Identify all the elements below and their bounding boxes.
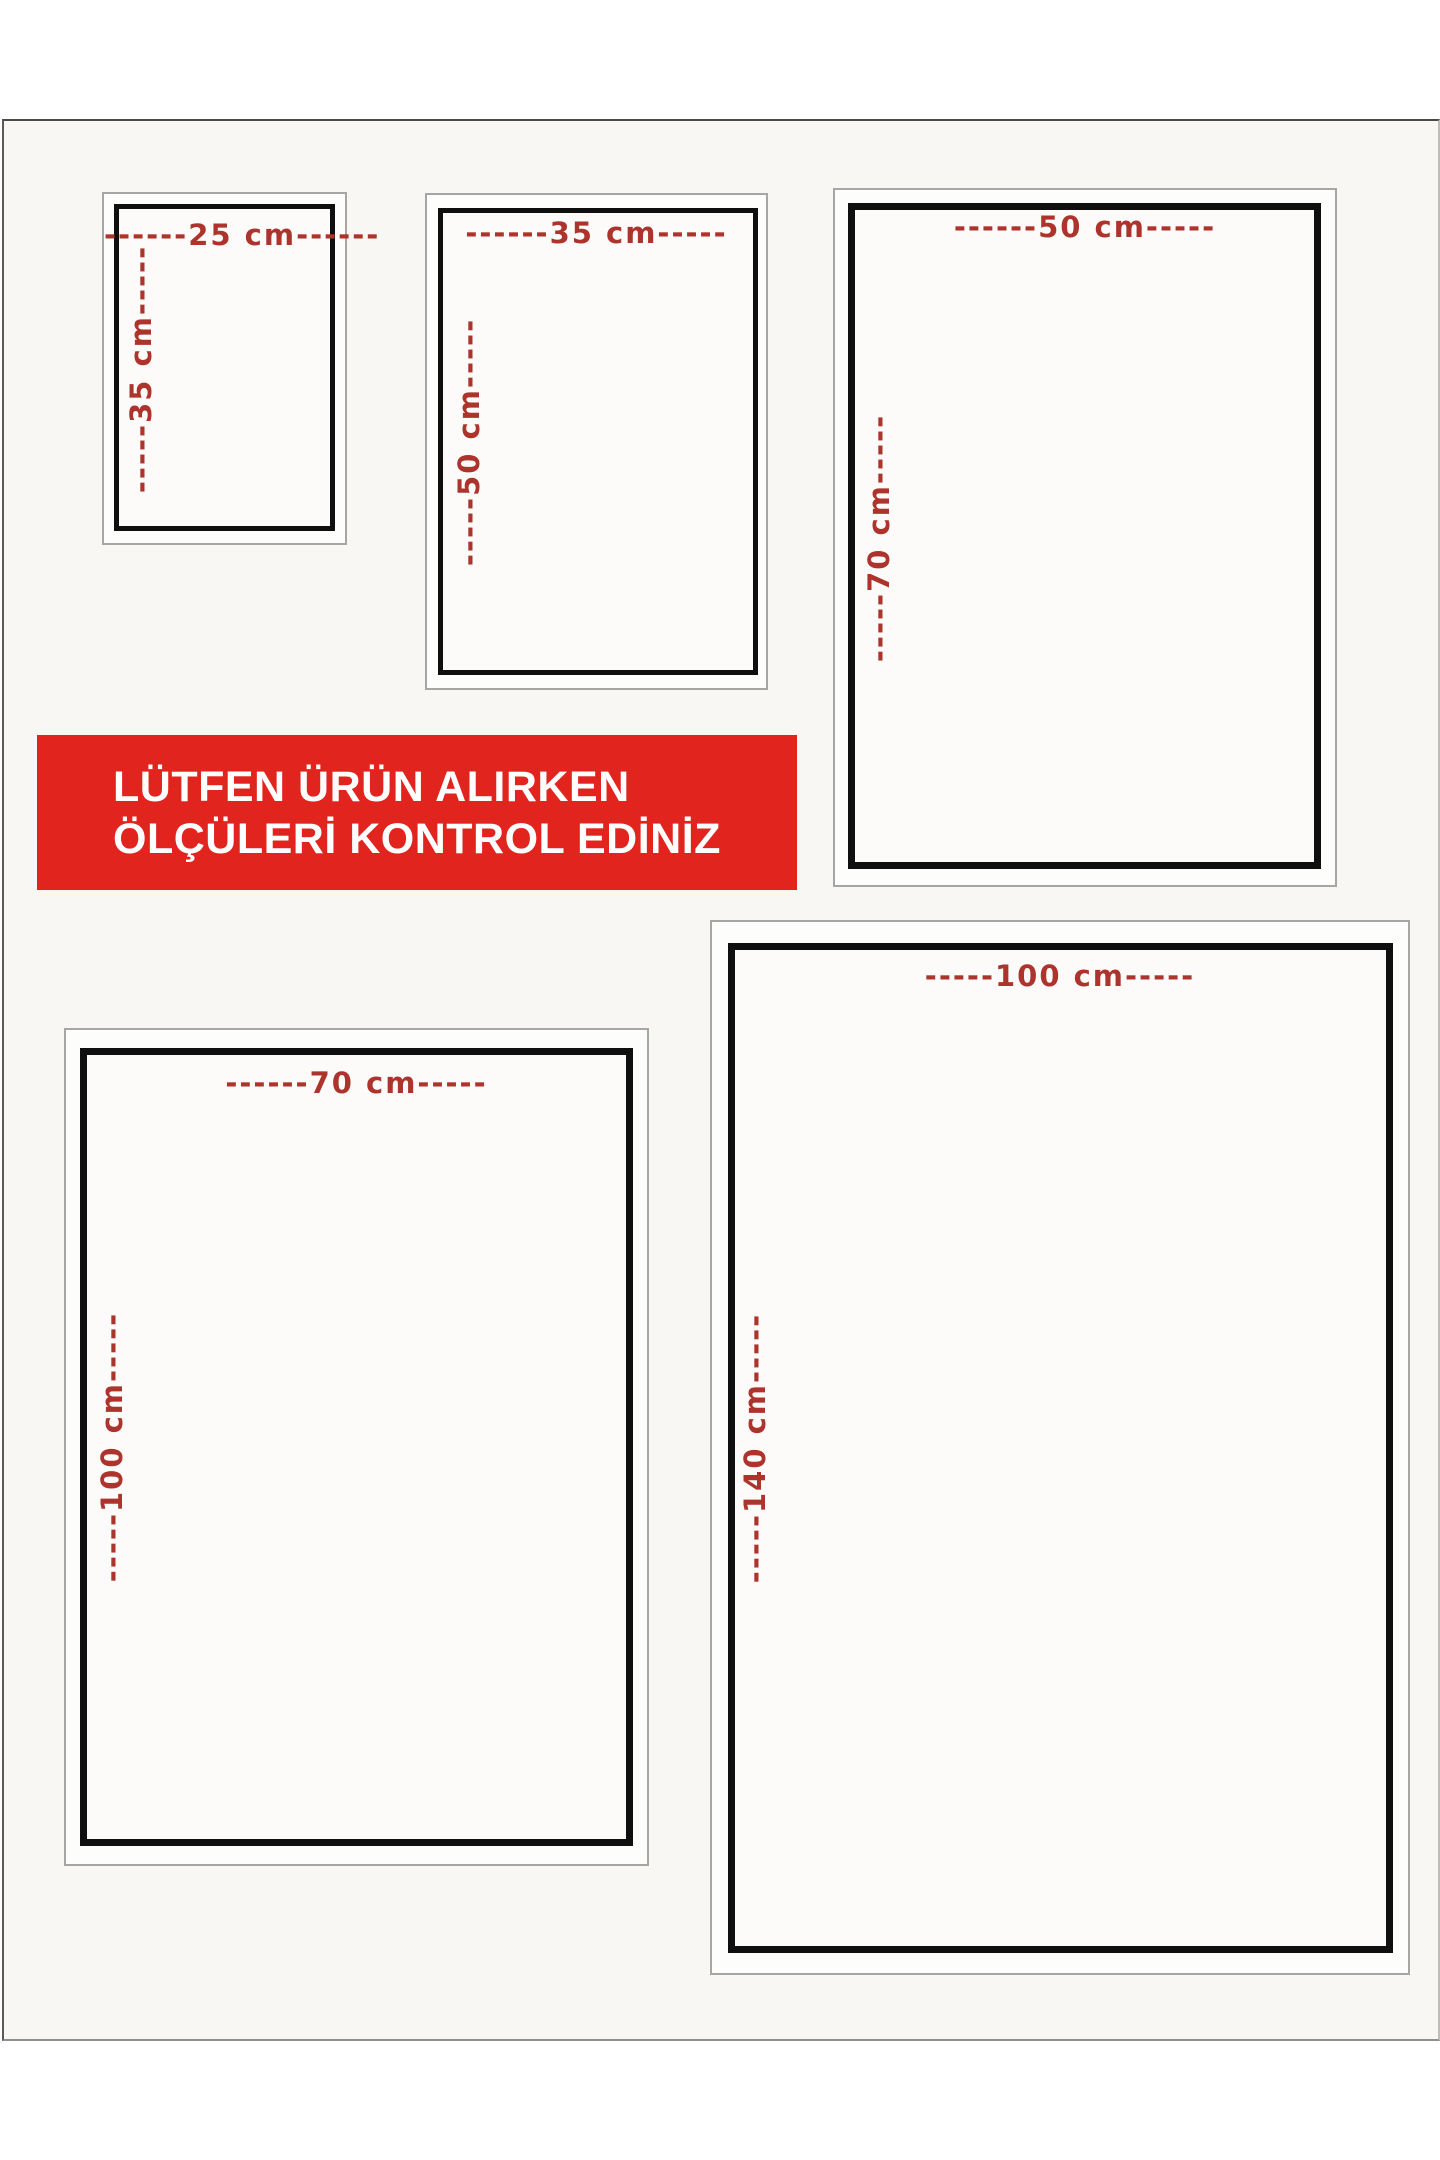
height-dimension-label: -----70 cm----- (862, 413, 896, 661)
height-dimension-label: -----50 cm----- (452, 317, 486, 565)
width-dimension-label: ------70 cm----- (66, 1066, 647, 1100)
size-box-35x50: ------35 cm----- -----50 cm----- (425, 193, 768, 690)
warning-text-line2: ÖLÇÜLERİ KONTROL EDİNİZ (113, 813, 797, 865)
size-warning-banner: LÜTFEN ÜRÜN ALIRKEN ÖLÇÜLERİ KONTROL EDİ… (37, 735, 797, 890)
width-dimension-label: ------50 cm----- (835, 210, 1335, 244)
size-box-25x35: ------25 cm------ -----35 cm----- (102, 192, 347, 545)
size-box-100x140: -----100 cm----- -----140 cm----- (710, 920, 1410, 1975)
size-box-70x100-outline (80, 1048, 633, 1846)
size-box-50x70-outline (848, 203, 1321, 869)
width-dimension-label: ------35 cm----- (427, 216, 766, 250)
height-dimension-label: -----140 cm----- (738, 1312, 772, 1582)
size-box-50x70: ------50 cm----- -----70 cm----- (833, 188, 1337, 887)
height-dimension-label: -----35 cm----- (124, 244, 158, 492)
size-box-70x100: ------70 cm----- -----100 cm----- (64, 1028, 649, 1866)
size-box-35x50-outline (438, 208, 758, 675)
warning-text-line1: LÜTFEN ÜRÜN ALIRKEN (113, 761, 797, 813)
size-box-100x140-outline (728, 943, 1393, 1953)
height-dimension-label: -----100 cm----- (95, 1312, 129, 1582)
width-dimension-label: -----100 cm----- (712, 959, 1408, 993)
